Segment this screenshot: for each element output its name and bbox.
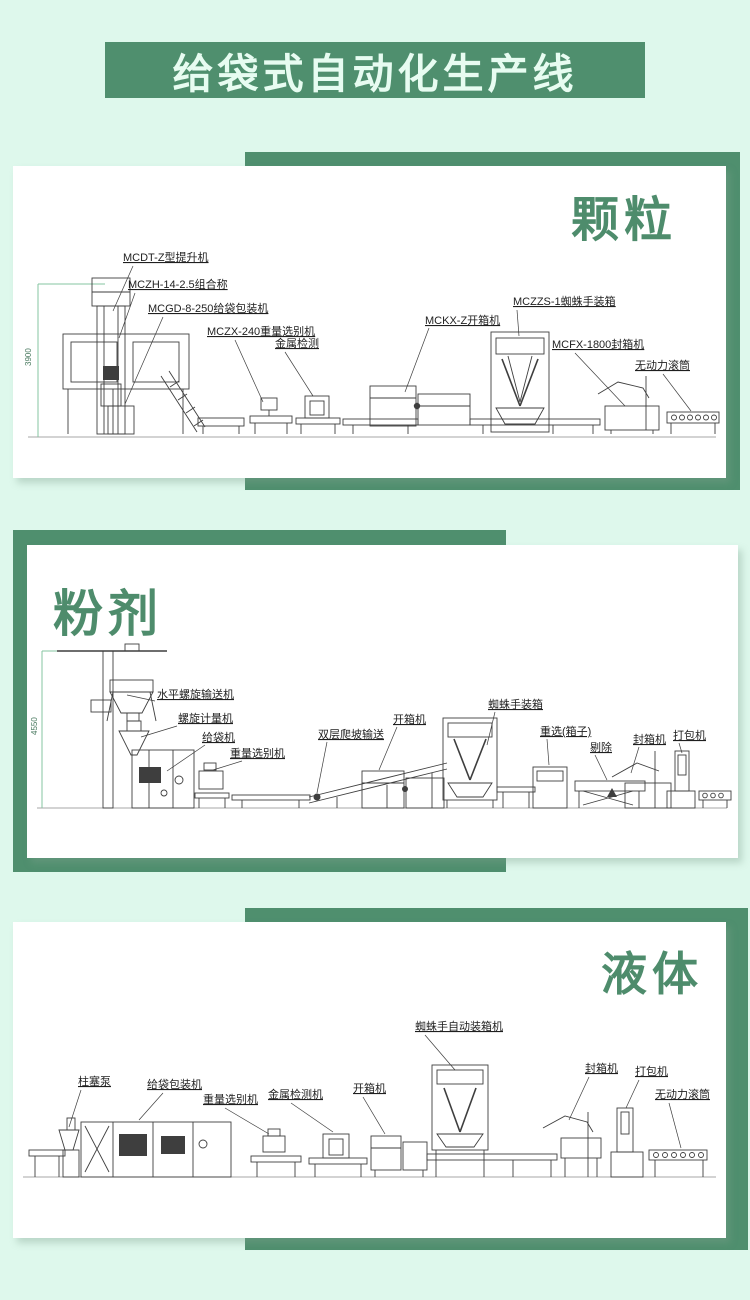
- machine-label: 重量选别机: [230, 746, 285, 760]
- checkweigher-drawing: [251, 1129, 301, 1177]
- machine-label: 金属检测机: [268, 1087, 323, 1101]
- machine-label: 开箱机: [353, 1081, 386, 1095]
- incline-conveyor-drawing: [309, 763, 447, 808]
- machine-label: 打包机: [673, 728, 706, 742]
- flat-conveyor-drawing: [232, 795, 310, 808]
- machine-label: 封箱机: [585, 1061, 618, 1075]
- metal-detector-drawing: [296, 396, 340, 434]
- spider-robot-drawing: [491, 332, 549, 432]
- machine-label: 打包机: [635, 1064, 668, 1078]
- title-banner: 给袋式自动化生产线: [105, 42, 645, 98]
- liquid-card: 液体: [13, 922, 726, 1238]
- case-sealer-drawing: [543, 1112, 601, 1177]
- machine-label: 柱塞泵: [78, 1074, 111, 1088]
- case-opener-drawing: [371, 1136, 427, 1177]
- roller-conveyor-drawing: [649, 1150, 707, 1177]
- machine-label: 剔除: [590, 740, 612, 754]
- machine-label: MCKX-Z开箱机: [425, 313, 500, 327]
- machine-label: 封箱机: [633, 732, 666, 746]
- recheck-cabinet-drawing: [533, 767, 567, 808]
- machine-label: 无动力滚筒: [635, 358, 690, 372]
- height-dimension: 3900: [24, 284, 105, 437]
- powder-heading: 粉剂: [53, 586, 163, 642]
- machine-label: 蜘蛛手自动装箱机: [415, 1019, 503, 1033]
- infeed-conveyor-drawing: [29, 1150, 65, 1177]
- elevator-weigher-drawing: [63, 278, 189, 434]
- case-sealer-drawing: [598, 376, 659, 434]
- hopper-drawing: [91, 680, 156, 721]
- support-column-drawing: [57, 644, 167, 808]
- machine-label: MCZX-240重量选别机: [207, 324, 315, 338]
- dimension-value: 4550: [30, 717, 39, 735]
- packing-conveyor-drawing: [427, 1154, 557, 1177]
- machine-label: 水平螺旋输送机: [157, 687, 234, 701]
- machine-label: 开箱机: [393, 712, 426, 726]
- checkweigher-drawing: [250, 398, 292, 434]
- case-opener-drawing: [370, 386, 470, 426]
- dimension-value: 3900: [24, 348, 33, 366]
- machine-label: 给袋机: [202, 730, 235, 744]
- granule-diagram: 颗粒 3900: [13, 166, 726, 478]
- discharge-conveyor-drawing: [198, 418, 244, 434]
- machine-label: 重量选别机: [203, 1092, 258, 1106]
- case-sealer-drawing: [612, 751, 671, 808]
- powder-diagram: 粉剂 4550: [27, 545, 738, 858]
- bag-packer-drawing: [81, 1122, 231, 1177]
- exit-conveyor-drawing: [497, 787, 535, 808]
- reject-conveyor-drawing: [575, 781, 645, 808]
- liquid-diagram: 液体: [13, 922, 726, 1238]
- machine-label: 金属检测: [275, 336, 319, 350]
- machine-label: MCGD-8-250给袋包装机: [148, 301, 268, 315]
- machine-label: 螺旋计量机: [178, 711, 233, 725]
- height-dimension: 4550: [30, 651, 87, 808]
- granule-card: 颗粒 3900: [13, 166, 726, 478]
- mid-conveyor-drawing: [343, 419, 418, 434]
- powder-card: 粉剂 4550: [27, 545, 738, 858]
- machine-label: 给袋包装机: [147, 1077, 202, 1091]
- roller-conveyor-drawing: [667, 412, 719, 434]
- machine-label: 无动力滚筒: [655, 1087, 710, 1101]
- machine-label: 双层爬坡输送: [318, 727, 384, 741]
- spider-robot-drawing: [443, 718, 497, 808]
- page: 给袋式自动化生产线 颗粒 3900: [0, 0, 750, 1300]
- strapper-drawing: [611, 1108, 643, 1177]
- machine-label: 重选(箱子): [540, 724, 591, 738]
- machine-label: MCZH-14-2.5组合称: [128, 277, 228, 291]
- liquid-heading: 液体: [601, 948, 703, 1000]
- machine-label: MCZZS-1蜘蛛手装箱: [513, 294, 616, 308]
- page-title: 给袋式自动化生产线: [173, 40, 578, 100]
- machine-label: 蜘蛛手装箱: [488, 697, 543, 711]
- machine-label: MCFX-1800封箱机: [552, 337, 644, 351]
- granule-heading: 颗粒: [571, 194, 677, 247]
- machine-label: MCDT-Z型提升机: [123, 250, 209, 264]
- metal-detector-drawing: [309, 1134, 367, 1177]
- roller-conveyor-drawing: [699, 791, 731, 808]
- checkweigher-drawing: [195, 763, 229, 808]
